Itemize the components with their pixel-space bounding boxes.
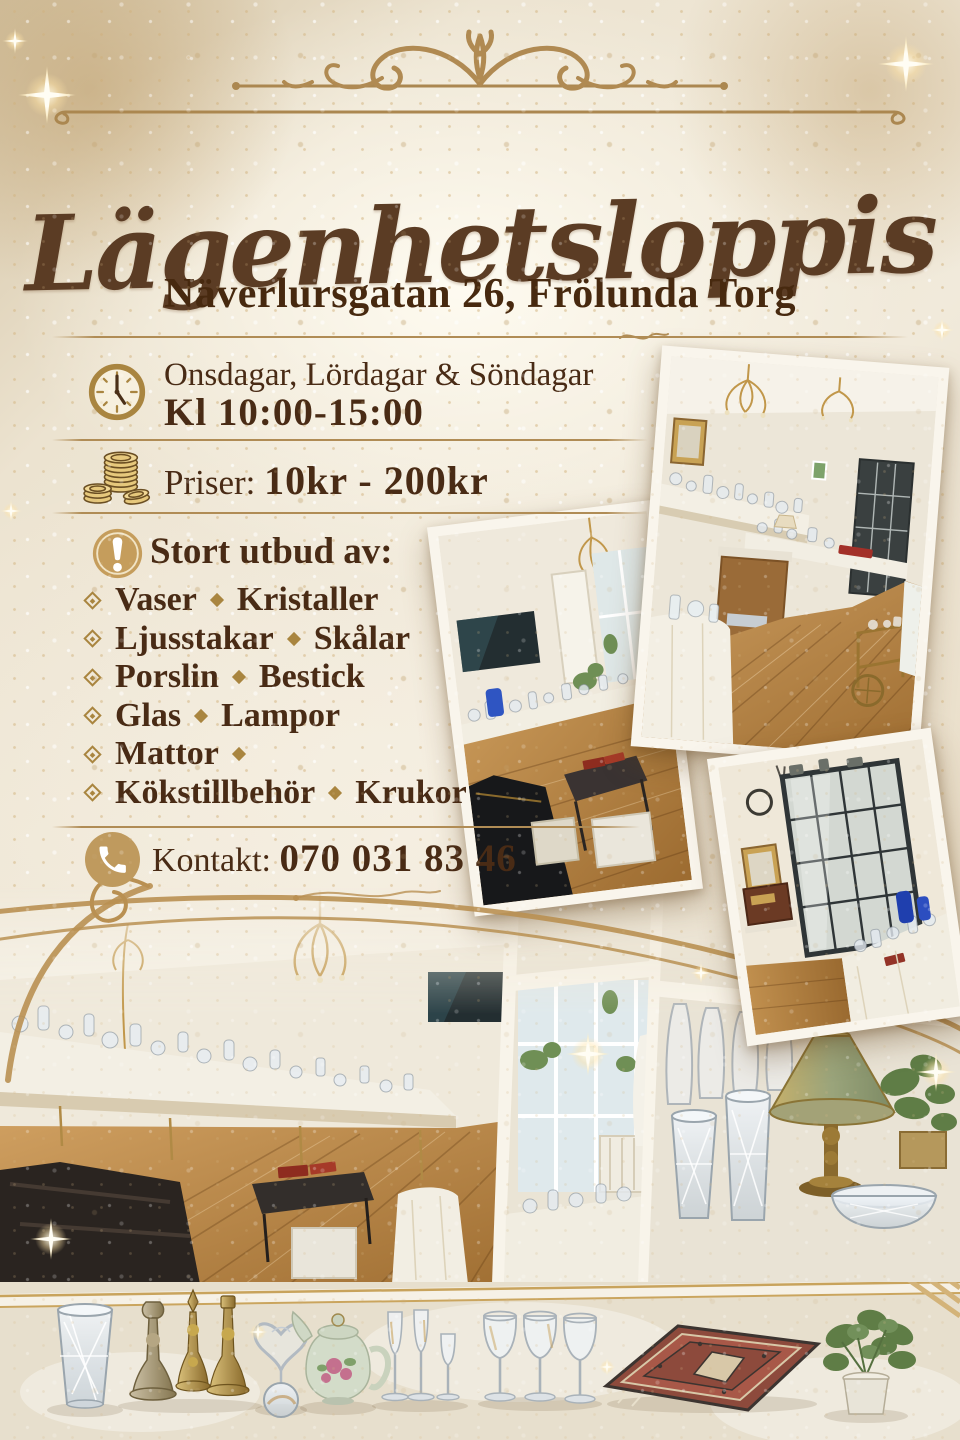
- item-word: Kristaller: [237, 581, 379, 619]
- clock-icon: [87, 362, 147, 422]
- item-word: Kökstillbehör: [115, 774, 315, 812]
- item-word: Vaser: [115, 581, 197, 619]
- prices-line: Priser: 10kr - 200kr: [164, 460, 489, 502]
- coins-icon: [82, 446, 152, 508]
- list-item: VaserKristaller: [86, 581, 467, 620]
- diamond-separator-icon: [194, 709, 208, 723]
- item-word: Ljusstakar: [115, 620, 274, 658]
- schedule-days: Onsdagar, Lördagar & Söndagar: [164, 358, 593, 393]
- list-item: PorslinBestick: [86, 658, 467, 697]
- phone-icon: [85, 832, 140, 887]
- sparkle-icon: [930, 318, 954, 342]
- item-word: Porslin: [115, 658, 219, 696]
- divider-curl-icon: [618, 328, 670, 346]
- diamond-separator-icon: [210, 593, 224, 607]
- divider: [52, 826, 640, 828]
- diamond-bullet-icon: [83, 784, 101, 802]
- list-item: LjusstakarSkålar: [86, 620, 467, 659]
- item-word: Glas: [115, 697, 181, 735]
- diamond-bullet-icon: [83, 707, 101, 725]
- list-item: GlasLampor: [86, 697, 467, 736]
- diamond-separator-icon: [287, 632, 301, 646]
- diamond-separator-icon: [328, 786, 342, 800]
- diamond-bullet-icon: [83, 591, 101, 609]
- prices-range: 10kr - 200kr: [264, 458, 489, 503]
- diamond-separator-icon: [232, 747, 246, 761]
- contact-line: Kontakt: 070 031 83 46: [152, 839, 517, 880]
- product-strip: [0, 1282, 960, 1440]
- address-line: Näverlursgatan 26, Frölunda Torg: [0, 270, 960, 318]
- sparkle-icon: [2, 28, 28, 54]
- catalog-list: VaserKristaller LjusstakarSkålar Porslin…: [86, 581, 467, 812]
- shop-photo-large: [631, 345, 950, 768]
- diamond-bullet-icon: [83, 745, 101, 763]
- diamond-bullet-icon: [83, 668, 101, 686]
- contact-phone: 070 031 83 46: [279, 837, 516, 880]
- sparkle-icon: [0, 500, 22, 522]
- flourish-divider-icon: [50, 26, 910, 126]
- item-word: Bestick: [259, 658, 365, 696]
- catalog-heading: Stort utbud av:: [150, 533, 393, 572]
- flea-market-flyer: Lägenhetsloppis Näverlursgatan 26, Frölu…: [0, 0, 960, 1440]
- diamond-bullet-icon: [83, 630, 101, 648]
- prices-label: Priser:: [164, 463, 255, 502]
- item-word: Mattor: [115, 735, 219, 773]
- divider: [52, 439, 648, 441]
- list-item: Mattor: [86, 735, 467, 774]
- item-word: Skålar: [314, 620, 410, 658]
- list-item: KökstillbehörKrukor: [86, 774, 467, 813]
- item-word: Lampor: [221, 697, 340, 735]
- contact-label: Kontakt:: [152, 842, 271, 879]
- diamond-separator-icon: [232, 670, 246, 684]
- schedule-hours: Kl 10:00-15:00: [164, 393, 424, 434]
- divider: [52, 512, 648, 514]
- divider: [52, 336, 908, 338]
- exclamation-icon: [91, 527, 144, 580]
- shop-photo-cabinet: [707, 728, 960, 1047]
- item-word: Krukor: [355, 774, 466, 812]
